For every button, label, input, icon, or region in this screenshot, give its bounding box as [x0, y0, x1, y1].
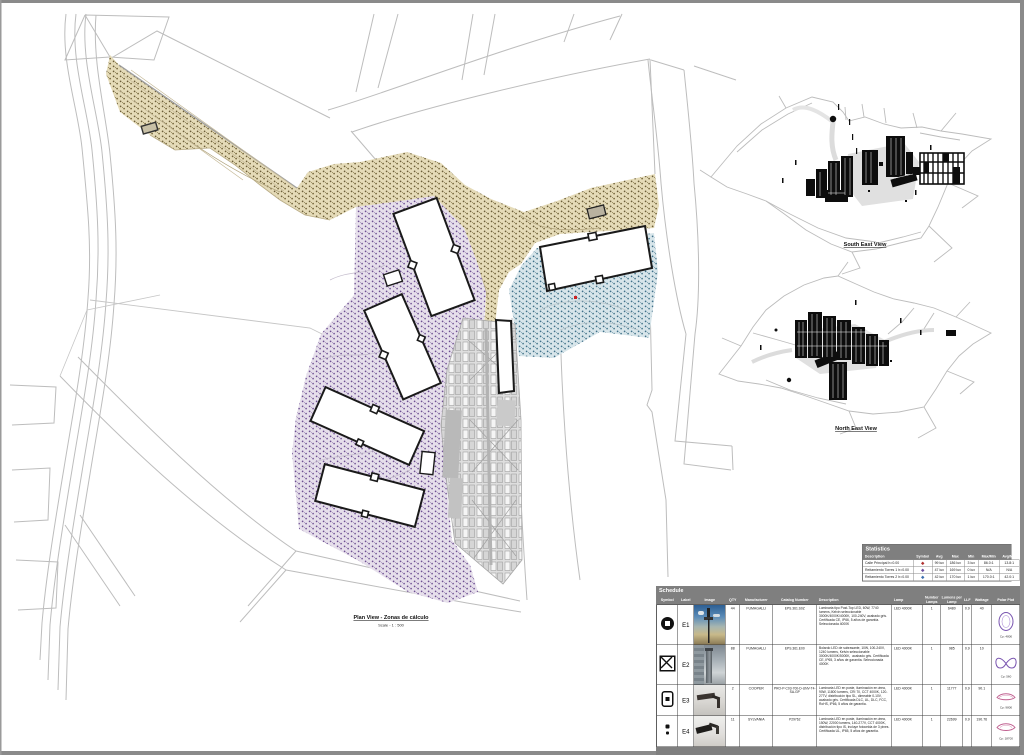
- svg-text:Cp: 4800: Cp: 4800: [1000, 635, 1013, 639]
- svg-text:Scale - 1 : 500: Scale - 1 : 500: [378, 623, 405, 628]
- svg-text:Cp: 560: Cp: 560: [1000, 675, 1011, 679]
- svg-text:Cp: 18700: Cp: 18700: [999, 737, 1013, 741]
- svg-text:South East View: South East View: [844, 242, 887, 248]
- svg-text:Cp: 9800: Cp: 9800: [1000, 706, 1013, 710]
- svg-text:North East View: North East View: [835, 426, 877, 432]
- svg-text:Plan View - Zonas de cálculo: Plan View - Zonas de cálculo: [353, 615, 429, 621]
